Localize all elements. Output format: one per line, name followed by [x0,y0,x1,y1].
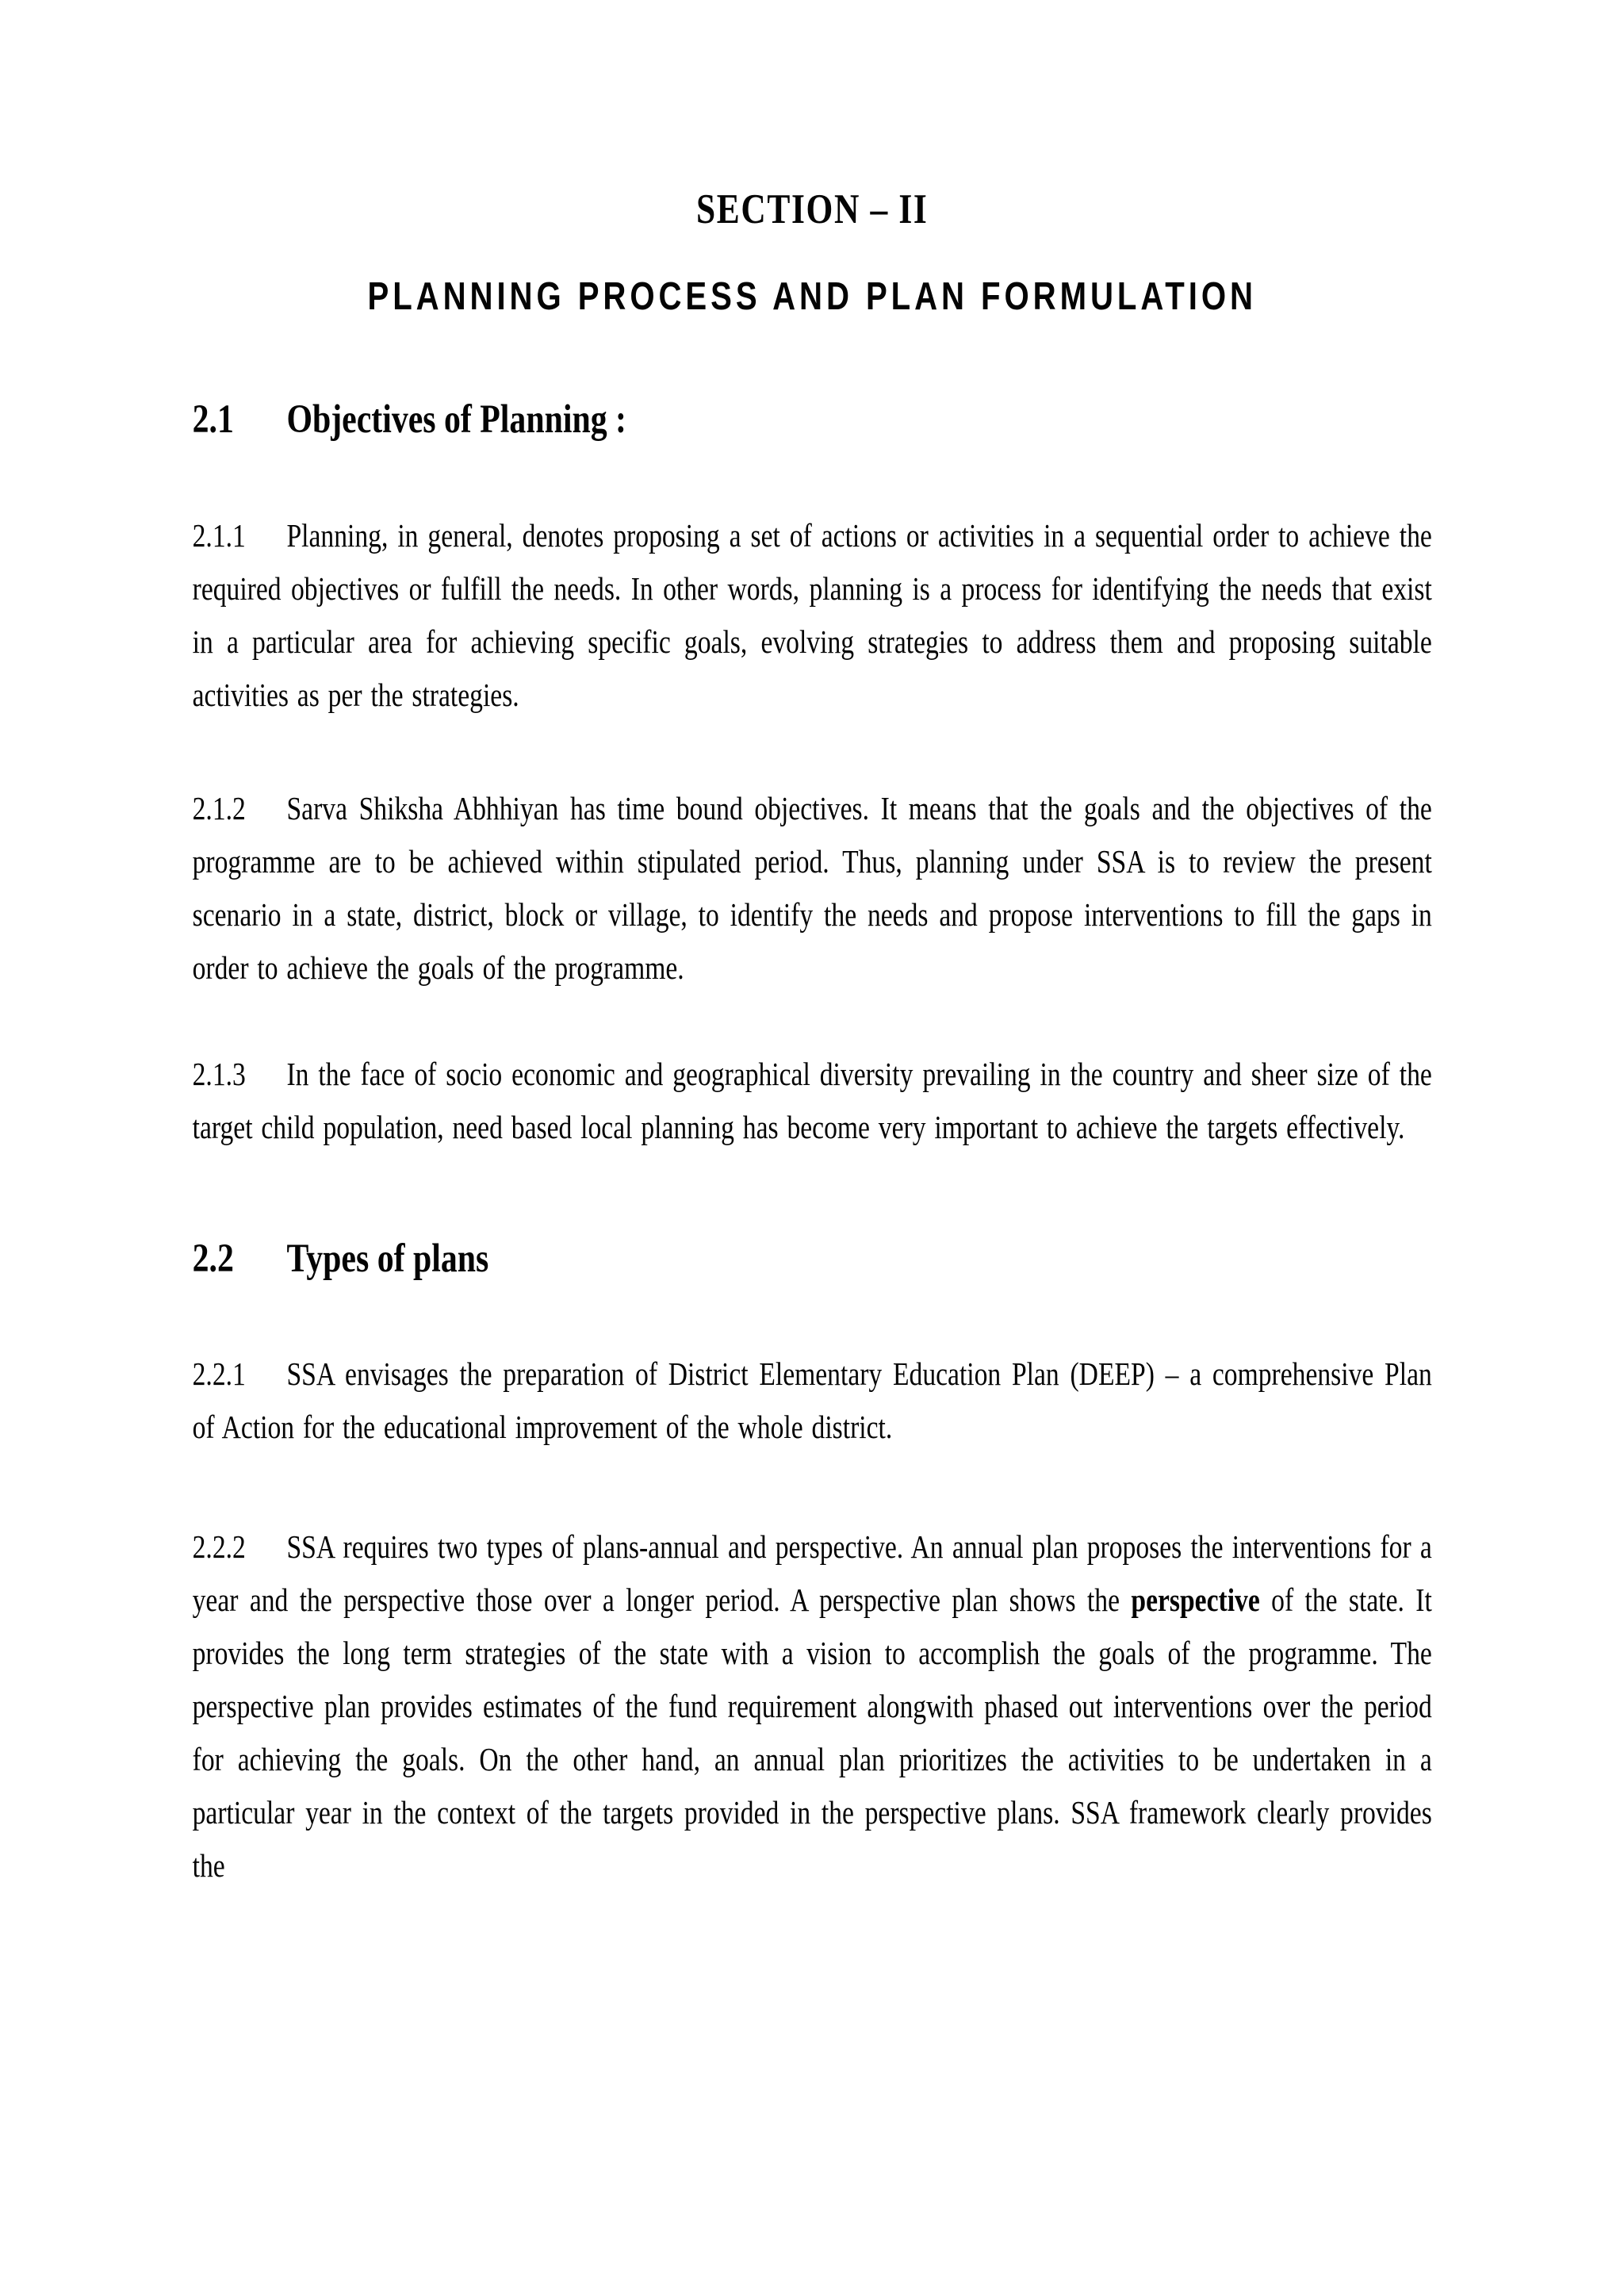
paragraph-number: 2.1.3 [193,1048,287,1101]
document-page: SECTION – II PLANNING PROCESS AND PLAN F… [0,187,1624,2289]
paragraph-2-1-2: 2.1.2Sarva Shiksha Abhhiyan has time bou… [193,782,1432,995]
heading-text: Types of plans [286,1237,488,1281]
page-title: PLANNING PROCESS AND PLAN FORMULATION [193,276,1432,317]
paragraph-2-1-1: 2.1.1Planning, in general, denotes propo… [193,509,1432,722]
paragraph-text: Sarva Shiksha Abhhiyan has time bound ob… [193,790,1432,986]
heading-number: 2.2 [193,1237,287,1280]
paragraph-text: SSA envisages the preparation of Distric… [193,1355,1432,1445]
heading-number: 2.1 [193,398,287,441]
paragraph-text-after-bold: of the state. It provides the long term … [193,1582,1432,1884]
paragraph-2-2-2: 2.2.2SSA requires two types of plans-ann… [193,1520,1432,1892]
paragraph-number: 2.2.1 [193,1348,287,1401]
paragraph-text: In the face of socio economic and geogra… [193,1056,1432,1145]
paragraph-number: 2.1.2 [193,782,287,835]
paragraph-number: 2.1.1 [193,509,287,562]
paragraph-2-2-1: 2.2.1SSA envisages the preparation of Di… [193,1348,1432,1454]
paragraph-number: 2.2.2 [193,1520,287,1574]
heading-types-of-plans: 2.2Types of plans [193,1237,1432,1280]
heading-objectives-of-planning: 2.1Objectives of Planning : [193,398,1432,441]
section-title: SECTION – II [193,187,1432,232]
paragraph-2-1-3: 2.1.3In the face of socio economic and g… [193,1048,1432,1154]
paragraph-bold-word: perspective [1131,1582,1259,1618]
paragraph-text: Planning, in general, denotes proposing … [193,517,1432,713]
heading-text: Objectives of Planning : [286,397,626,442]
